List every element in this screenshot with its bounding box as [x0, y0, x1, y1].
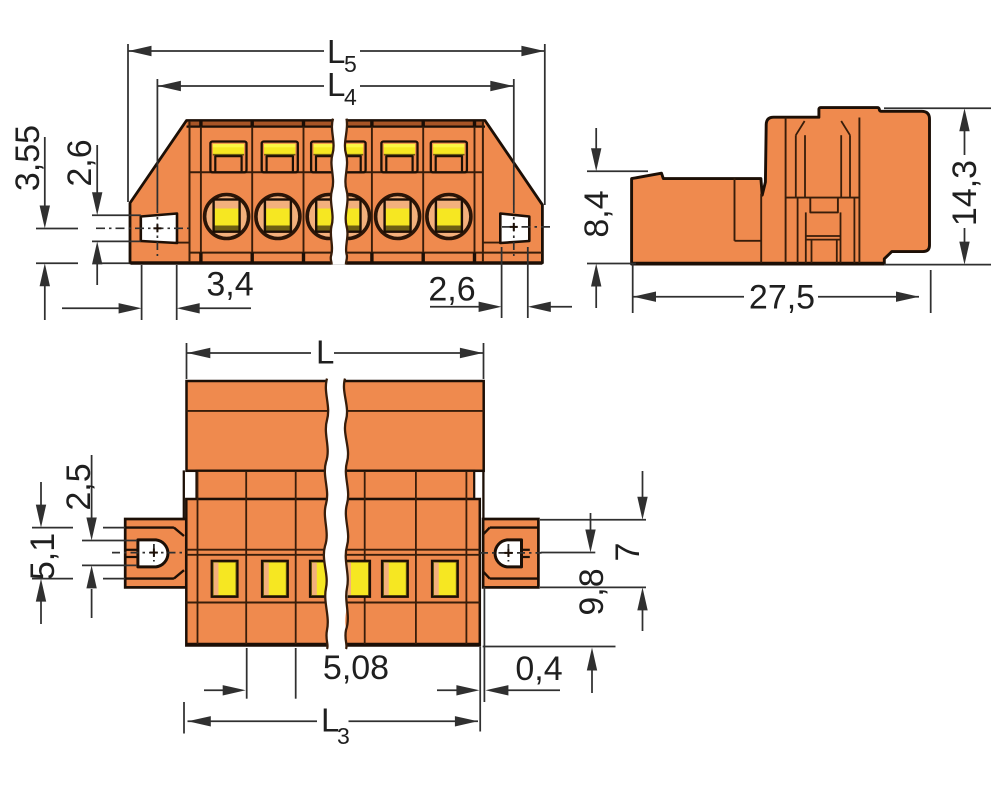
svg-text:L: L [327, 66, 345, 103]
svg-text:5: 5 [344, 51, 357, 77]
svg-text:9,8: 9,8 [573, 568, 611, 615]
svg-text:4: 4 [344, 84, 357, 110]
svg-text:2,5: 2,5 [60, 463, 98, 510]
svg-text:7: 7 [609, 543, 647, 562]
svg-text:2,6: 2,6 [428, 271, 475, 309]
svg-text:5,1: 5,1 [24, 533, 62, 580]
svg-text:3: 3 [337, 723, 350, 749]
svg-text:3,4: 3,4 [206, 266, 253, 304]
svg-text:14,3: 14,3 [946, 160, 984, 226]
svg-text:3,55: 3,55 [9, 125, 47, 191]
svg-text:8,4: 8,4 [578, 190, 616, 237]
svg-text:0,4: 0,4 [515, 650, 562, 688]
svg-text:5,08: 5,08 [323, 649, 389, 687]
svg-text:L: L [327, 33, 345, 70]
svg-text:2,6: 2,6 [61, 139, 99, 186]
svg-text:27,5: 27,5 [749, 279, 815, 317]
svg-text:L: L [316, 334, 334, 371]
